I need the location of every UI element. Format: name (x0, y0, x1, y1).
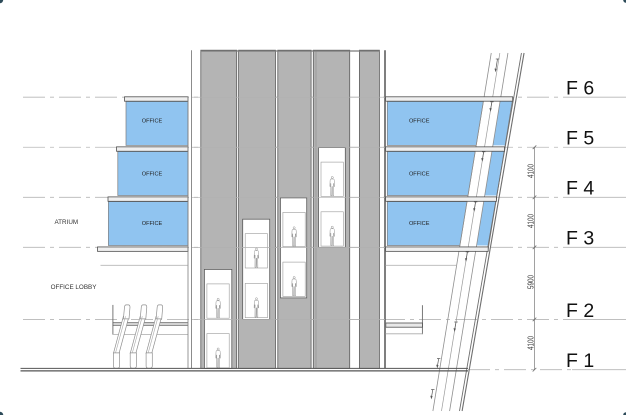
svg-text:OFFICE: OFFICE (142, 172, 163, 178)
svg-text:4100: 4100 (526, 164, 535, 178)
svg-text:5900: 5900 (526, 275, 535, 289)
svg-text:F 5: F 5 (566, 128, 594, 150)
svg-text:OFFICE: OFFICE (409, 221, 430, 227)
svg-text:F 1: F 1 (566, 350, 594, 372)
svg-text:4100: 4100 (526, 214, 535, 228)
svg-text:F 2: F 2 (566, 300, 594, 322)
svg-text:OFFICE: OFFICE (142, 221, 163, 227)
svg-text:OFFICE: OFFICE (409, 119, 430, 125)
svg-text:ATRIUM: ATRIUM (54, 219, 78, 226)
svg-text:F 6: F 6 (566, 78, 594, 100)
svg-text:F 3: F 3 (566, 228, 594, 250)
svg-text:OFFICE: OFFICE (409, 172, 430, 178)
svg-text:OFFICE LOBBY: OFFICE LOBBY (51, 284, 98, 291)
svg-text:OFFICE: OFFICE (142, 119, 163, 125)
svg-text:4100: 4100 (526, 336, 535, 350)
svg-text:F 4: F 4 (566, 178, 594, 200)
